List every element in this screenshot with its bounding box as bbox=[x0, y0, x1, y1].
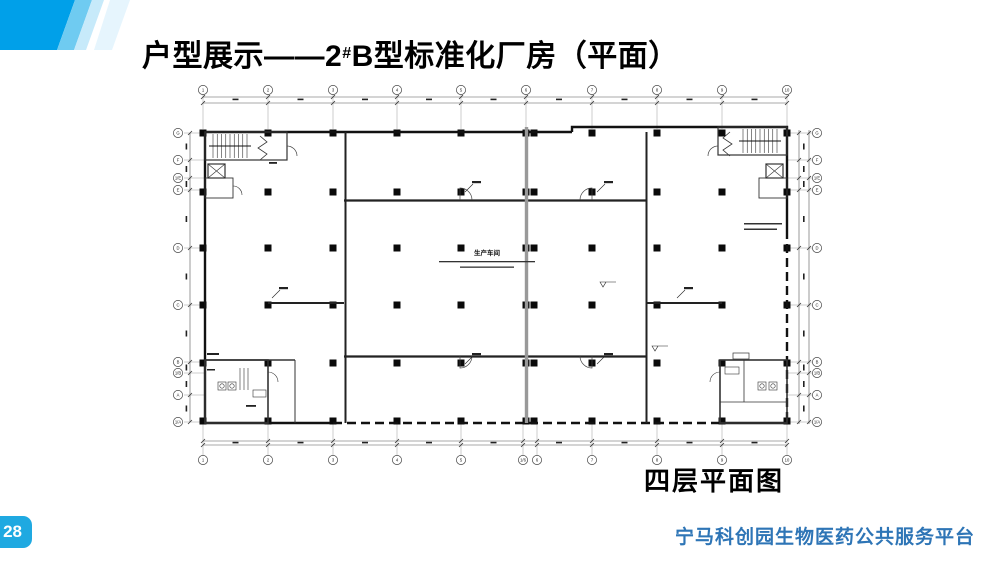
toilet-southwest bbox=[205, 360, 295, 423]
svg-text:1/A: 1/A bbox=[175, 420, 181, 425]
svg-text:C: C bbox=[176, 303, 179, 308]
extension-lines bbox=[184, 95, 813, 456]
svg-text:1/E: 1/E bbox=[814, 176, 820, 181]
side-note-lines bbox=[744, 223, 782, 230]
break-symbol-left bbox=[258, 136, 267, 160]
plan-static-layer: 生产车间 bbox=[205, 127, 787, 423]
svg-text:G: G bbox=[815, 131, 818, 136]
svg-text:A: A bbox=[177, 393, 180, 398]
svg-text:B: B bbox=[816, 360, 819, 365]
svg-text:C: C bbox=[815, 303, 818, 308]
plan-caption: 四层平面图 bbox=[644, 461, 784, 498]
plan-dynamic-layer: 12345678910123451/6678910GF1/EEDCB1/BA1/… bbox=[173, 85, 821, 464]
dimension-lines bbox=[190, 97, 809, 445]
title-suffix: B型标准化厂房（平面） bbox=[352, 40, 679, 73]
svg-text:10: 10 bbox=[785, 88, 790, 93]
svg-text:E: E bbox=[177, 188, 180, 193]
header-decoration bbox=[0, 0, 140, 50]
svg-text:E: E bbox=[816, 188, 819, 193]
svg-text:G: G bbox=[176, 131, 179, 136]
stair-treads bbox=[209, 129, 781, 158]
outer-wall-dashed bbox=[330, 230, 787, 423]
small-room-tags bbox=[207, 162, 277, 407]
svg-text:1/A: 1/A bbox=[814, 420, 820, 425]
footer-text: 宁马科创园生物医药公共服务平台 bbox=[675, 522, 975, 549]
svg-text:A: A bbox=[816, 393, 819, 398]
dimension-number-marks bbox=[186, 99, 805, 444]
room-label: 生产车间 bbox=[474, 248, 501, 257]
page-title: 户型展示——2#B型标准化厂房（平面） bbox=[142, 31, 679, 75]
svg-text:1/B: 1/B bbox=[175, 371, 181, 376]
room-note-lines bbox=[439, 261, 535, 268]
grid-bubbles: 12345678910123451/6678910GF1/EEDCB1/BA1/… bbox=[173, 85, 821, 464]
outer-wall bbox=[205, 127, 787, 423]
floor-plan-svg: 12345678910123451/6678910GF1/EEDCB1/BA1/… bbox=[160, 72, 830, 477]
door-tag-leaders bbox=[272, 184, 685, 364]
title-superscript: # bbox=[342, 45, 351, 62]
door-tag-marks bbox=[279, 181, 693, 355]
svg-text:1/E: 1/E bbox=[175, 176, 181, 181]
svg-text:F: F bbox=[816, 158, 819, 163]
stair-northeast bbox=[718, 127, 787, 198]
hall-wall-vertical bbox=[346, 132, 647, 423]
page-number-badge: 28 bbox=[0, 516, 32, 548]
presentation-slide: 户型展示——2#B型标准化厂房（平面） 12345678910123451/66… bbox=[0, 0, 1000, 563]
page-number: 28 bbox=[3, 522, 22, 542]
hall-wall-horizontal bbox=[344, 201, 647, 357]
column-grid bbox=[200, 130, 791, 425]
floor-plan-area: 12345678910123451/6678910GF1/EEDCB1/BA1/… bbox=[160, 72, 830, 477]
svg-text:B: B bbox=[177, 360, 180, 365]
svg-text:1/6: 1/6 bbox=[520, 458, 526, 463]
svg-text:10: 10 bbox=[785, 458, 790, 463]
title-prefix: 户型展示——2 bbox=[142, 40, 342, 73]
svg-text:D: D bbox=[176, 246, 179, 251]
svg-text:F: F bbox=[177, 158, 180, 163]
elevation-markers bbox=[600, 282, 668, 351]
svg-text:D: D bbox=[815, 246, 818, 251]
door-swings bbox=[287, 146, 718, 368]
svg-text:1/B: 1/B bbox=[814, 371, 820, 376]
